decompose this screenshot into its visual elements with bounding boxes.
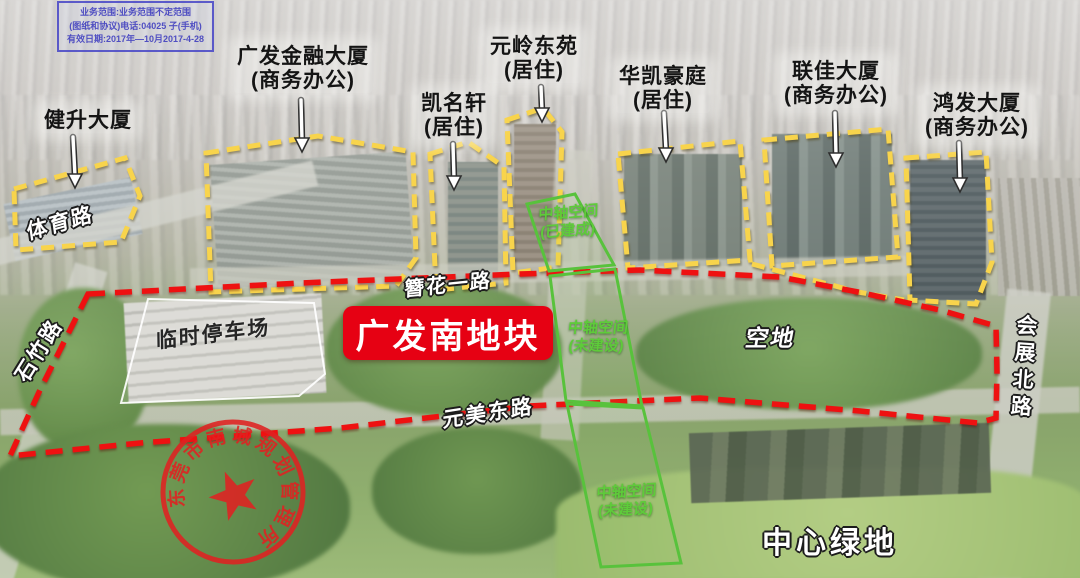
outline-lianjia <box>764 129 898 266</box>
label-guangfa-finance-tower: 广发金融大厦 (商务办公) <box>234 45 372 93</box>
zone-label-vacant-land: 空地 <box>743 319 799 353</box>
label-yuanling-dongyuan: 元岭东苑 (居住) <box>487 35 581 83</box>
building-name: 健升大厦 <box>44 109 132 133</box>
label-hongfa-tower: 鸿发大厦 (商务办公) <box>922 92 1032 140</box>
building-name: 元岭东苑 <box>490 35 578 59</box>
aerial-plan-map: 东莞市南城规划管理所 业务范围:业务范围不定范围 (图纸和协议)电话:04025… <box>0 0 1080 578</box>
building-use: (商务办公) <box>784 84 888 108</box>
surveyor-watermark: 业务范围:业务范围不定范围 (图纸和协议)电话:04025 子(手机) 有效日期… <box>57 1 214 52</box>
zone-label-central-green: 中心绿地 <box>762 518 898 562</box>
arrow-lianjia <box>829 113 843 167</box>
outline-hongfa <box>906 152 992 304</box>
annotation-overlay: 东莞市南城规划管理所 <box>0 0 1080 578</box>
red-seal-stamp: 东莞市南城规划管理所 <box>142 401 324 578</box>
watermark-line2: (图纸和协议)电话:04025 子(手机) <box>61 20 210 34</box>
label-huakai-haoting: 华凯豪庭 (居住) <box>616 65 710 113</box>
site-name-badge: 广发南地块 <box>343 306 553 360</box>
building-name: 广发金融大厦 <box>237 45 369 69</box>
label-jiansheng-tower: 健升大厦 <box>41 109 135 133</box>
arrow-guangfa <box>295 100 309 152</box>
building-use: (居住) <box>619 89 707 113</box>
zone-label-axis-unbuilt-mid: 中轴空间 (未建设) <box>565 319 629 354</box>
label-lianjia-tower: 联佳大厦 (商务办公) <box>781 60 891 108</box>
arrow-huakai <box>659 113 673 162</box>
label-kaimingxuan: 凯名轩 (居住) <box>418 92 490 140</box>
outline-huakai <box>618 141 750 268</box>
building-use: (居住) <box>490 59 578 83</box>
parking-outline <box>121 299 325 403</box>
axis-label-line2: (未建设) <box>595 499 656 520</box>
watermark-line1: 业务范围:业务范围不定范围 <box>61 6 210 20</box>
building-name: 鸿发大厦 <box>925 92 1029 116</box>
building-use: (商务办公) <box>925 116 1029 140</box>
arrow-kaiming <box>447 144 461 190</box>
building-name: 联佳大厦 <box>784 60 888 84</box>
zone-label-axis-unbuilt-bottom: 中轴空间 (未建设) <box>595 482 657 521</box>
watermark-line3: 有效日期:2017年—10月2017-4-28 <box>61 33 210 47</box>
building-name: 凯名轩 <box>421 92 487 116</box>
axis-label-line2: (未建设) <box>565 337 627 355</box>
zone-label-axis-built: 中轴空间 (已建成) <box>537 202 598 242</box>
arrow-hongfa <box>953 143 967 192</box>
outline-guangfa <box>206 136 416 292</box>
building-use: (居住) <box>421 116 487 140</box>
building-name: 华凯豪庭 <box>619 65 707 89</box>
seal-star-icon <box>202 462 265 524</box>
arrow-jiansheng <box>68 137 82 188</box>
axis-label-line1: 中轴空间 <box>567 319 629 337</box>
building-use: (商务办公) <box>237 69 369 93</box>
